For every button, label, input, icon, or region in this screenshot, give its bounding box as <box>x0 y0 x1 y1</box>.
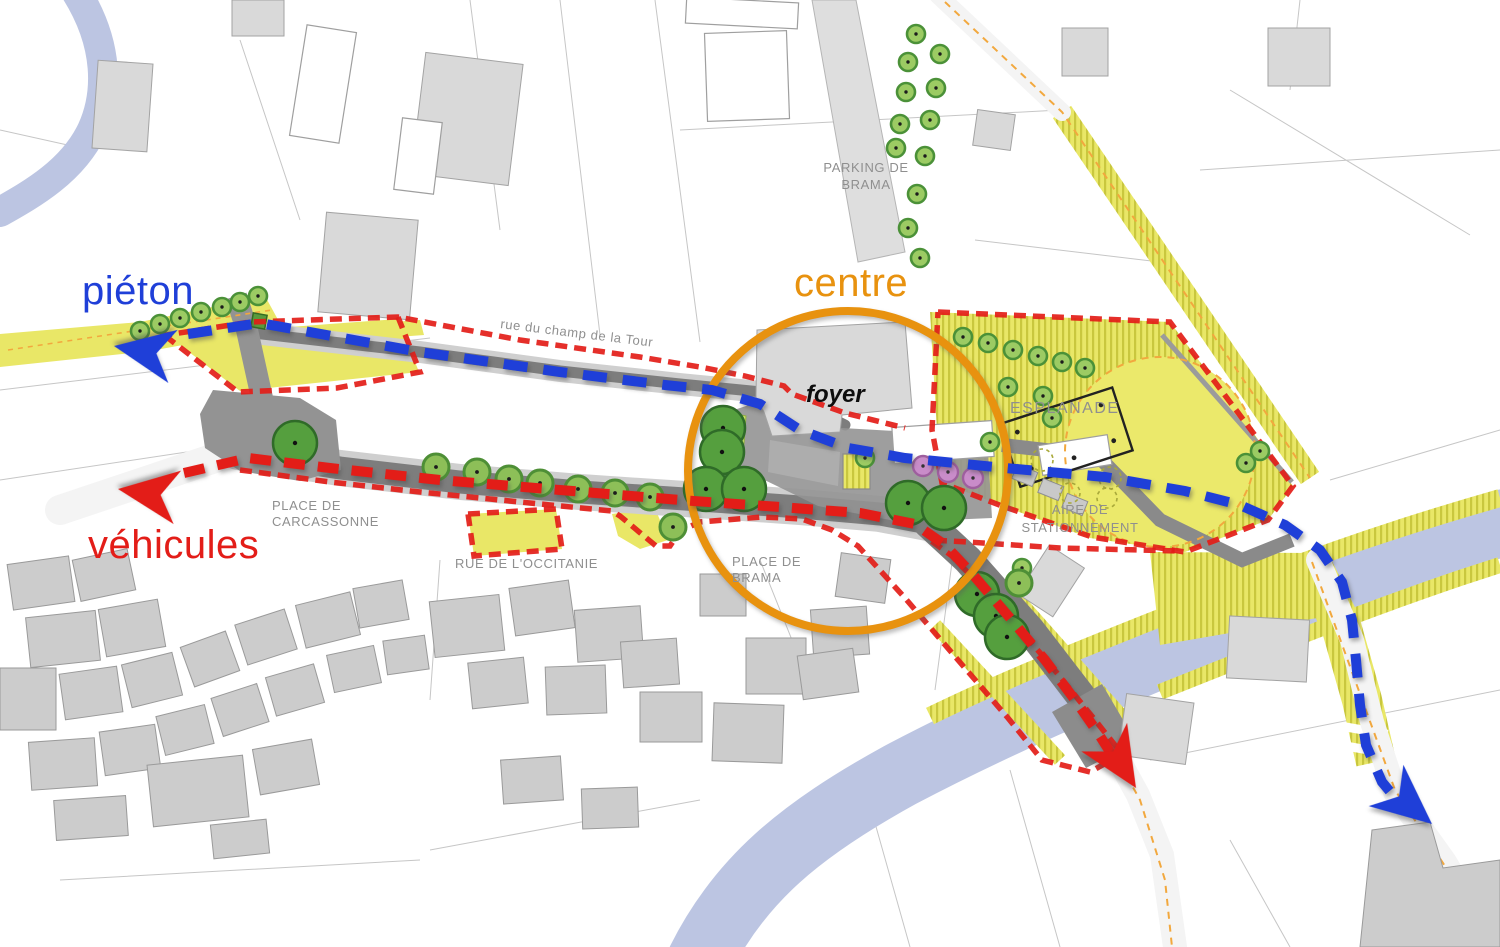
parking-brama-label-line2: BRAMA <box>841 177 890 192</box>
place-carcassonne-label-line2: CARCASSONNE <box>272 514 379 529</box>
aire-label-line2: STATIONNEMENT <box>1021 520 1138 535</box>
place-brama-label-line1: PLACE DE <box>732 554 801 569</box>
street-label-tour: rue du champ de la Tour <box>500 316 655 350</box>
urban-plan-map: rue du champ de la Tour PARKING DE BRAMA… <box>0 0 1500 947</box>
rue-occitanie-label: RUE DE L'OCCITANIE <box>455 556 598 571</box>
legend-pedestrian: piéton <box>82 269 194 313</box>
esplanade-label: ESPLANADE <box>1010 400 1120 417</box>
map-canvas: rue du champ de la Tour PARKING DE BRAMA… <box>0 0 1500 947</box>
legend-centre: centre <box>794 261 908 305</box>
legend-vehicles: véhicules <box>88 523 259 567</box>
foyer-label: foyer <box>806 381 866 408</box>
aire-label-line1: AIRE DE <box>1052 502 1108 517</box>
place-carcassonne-label-line1: PLACE DE <box>272 498 341 513</box>
parking-brama-label-line1: PARKING DE <box>823 160 908 175</box>
place-brama-label-line2: BRAMA <box>732 570 781 585</box>
